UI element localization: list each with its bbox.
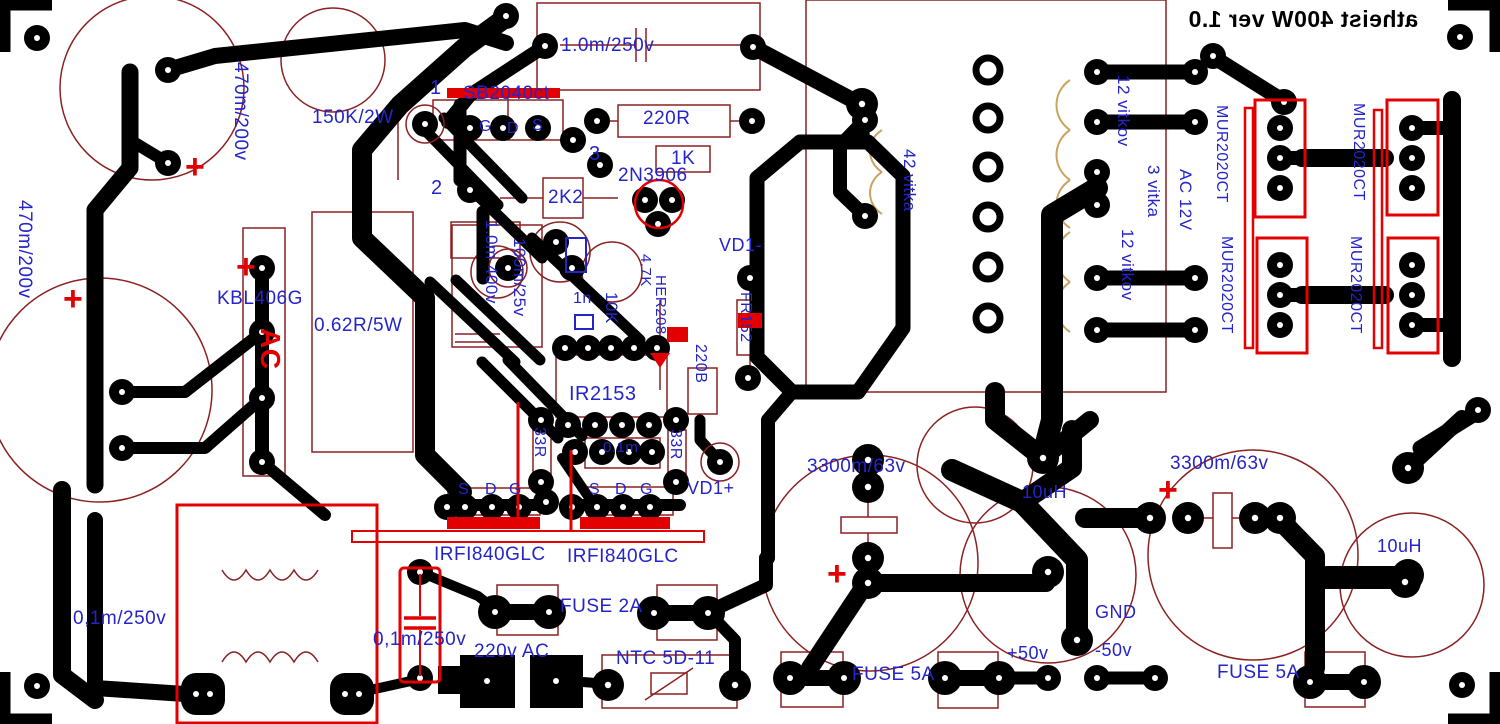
pcb-label: D (485, 482, 497, 498)
pcb-label: +50v (1007, 644, 1049, 662)
pcb-layout: 1.0m/250v470m/200v470m/200v150K/2W1SB204… (0, 0, 1500, 724)
pcb-label: 0.1m (603, 440, 638, 455)
pcb-label: D (615, 482, 627, 498)
polarity-plus-mark: + (827, 557, 847, 591)
pcb-label: IRFI840GLC (434, 545, 546, 564)
pcb-label: 100m/25v (511, 238, 528, 317)
polarity-plus-mark: + (185, 150, 205, 184)
pcb-label: FR152 (737, 292, 753, 343)
pcb-label: 0.62R/5W (314, 316, 402, 335)
pcb-label: VD1- (719, 236, 762, 254)
pcb-label: 4.7K (638, 254, 653, 287)
polarity-plus-mark: + (1158, 473, 1178, 507)
pcb-label: SB2040ct (463, 84, 549, 103)
pcb-label: GND (1095, 603, 1137, 621)
polarity-plus-mark: + (236, 250, 256, 284)
pcb-label: S (589, 482, 600, 498)
pcb-label: S (458, 482, 469, 498)
pcb-label: 12 vitkov (1119, 229, 1136, 301)
pcb-label: MUR2020CT (1218, 236, 1234, 334)
pcb-label: 33R (667, 429, 683, 460)
pcb-label: 2N3906 (618, 166, 688, 185)
pcb-label: 0,1m/250v (73, 609, 166, 628)
pcb-label: IRFI840GLC (567, 547, 679, 566)
pcb-label: 470m/200v (15, 200, 34, 299)
pcb-label: G (479, 119, 492, 135)
pcb-label: 220R (643, 109, 690, 128)
labels-layer: 1.0m/250v470m/200v470m/200v150K/2W1SB204… (0, 0, 1500, 724)
pcb-label: 10K (603, 292, 620, 324)
pcb-label: 12 vitkov (1115, 75, 1132, 147)
pcb-label: 2K2 (548, 188, 583, 207)
pcb-label: MUR2020CT (1347, 236, 1363, 334)
pcb-label: G (640, 482, 653, 498)
pcb-label: HER208 (653, 275, 668, 335)
pcb-label: 150K/2W (312, 108, 394, 127)
polarity-plus-mark: + (63, 282, 83, 316)
pcb-label: 220v AC (474, 642, 549, 661)
pcb-label: NTC 5D-11 (616, 649, 715, 668)
pcb-label: AC 12V (1177, 169, 1194, 231)
pcb-label: 10uH (1022, 483, 1067, 501)
pcb-label: FUSE 2A (560, 597, 643, 616)
pcb-label: VD1+ (687, 479, 735, 497)
pcb-label: MUR2020CT (1213, 105, 1229, 203)
pcb-label: 1 (430, 78, 442, 98)
pcb-label: 1.0m/250v (561, 36, 654, 55)
pcb-label: D (507, 121, 519, 137)
pcb-label: IR2153 (569, 384, 637, 404)
pcb-label: 470m/200v (231, 62, 250, 161)
pcb-label: 3300m/63v (1170, 454, 1269, 473)
pcb-label: 2 (431, 178, 443, 198)
pcb-label: 1n (573, 291, 592, 307)
pcb-label: 220B (692, 344, 708, 383)
pcb-label: FUSE 5A (1217, 663, 1300, 682)
pcb-label: 33R (531, 427, 547, 458)
pcb-label: AC (256, 328, 284, 369)
pcb-label: 1.0m 400v (483, 220, 500, 304)
pcb-label: 3300m/63v (807, 457, 906, 476)
pcb-label: S (532, 118, 543, 134)
pcb-label: G (509, 482, 522, 498)
board-title: atheist 400W ver 1.0 (1178, 6, 1428, 33)
pcb-label: -50v (1095, 641, 1132, 659)
pcb-label: 3 (589, 144, 601, 164)
pcb-label: 0,1m/250v (373, 630, 466, 649)
pcb-label: FUSE 5A (852, 665, 935, 684)
pcb-label: KBL406G (217, 289, 303, 308)
pcb-label: 42 vitka (901, 149, 918, 212)
pcb-label: 3 vitka (1145, 165, 1162, 218)
pcb-label: 10uH (1377, 537, 1422, 555)
pcb-label: MUR2020CT (1350, 103, 1366, 201)
